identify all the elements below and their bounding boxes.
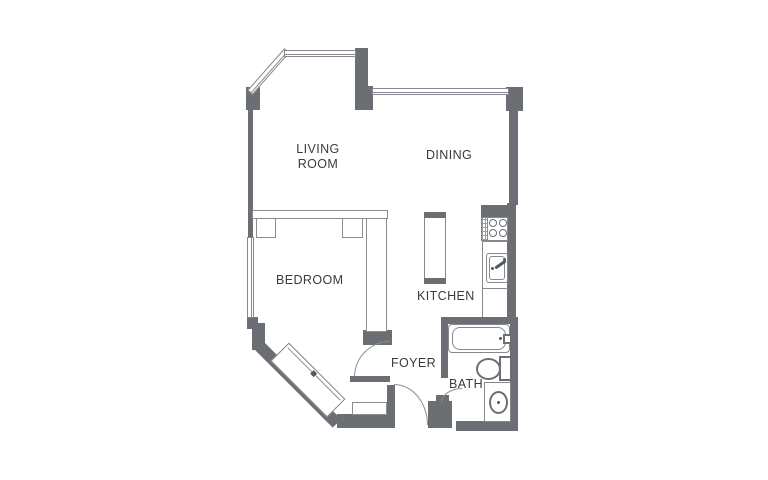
kitchen-sink-drain	[491, 267, 494, 270]
bath-sink-drain	[497, 401, 500, 404]
kitchen-island-cap-bottom	[424, 278, 446, 284]
room-label-living: LIVING ROOM	[283, 142, 353, 172]
floor-plan: LIVING ROOM DINING BEDROOM KITCHEN FOYER…	[0, 0, 768, 480]
wall-bottom-entry	[337, 414, 389, 428]
kitchen-island-cap-top	[424, 212, 446, 218]
bathtub-inner	[452, 327, 506, 350]
room-label-dining: DINING	[426, 148, 472, 162]
wall-pillar-top-middle-foot	[355, 86, 373, 110]
wall-bath-left	[441, 317, 448, 378]
kitchen-island	[424, 212, 446, 284]
bathtub-drain	[499, 337, 502, 340]
wall-bath-bottom	[456, 421, 518, 431]
room-label-bath: BATH	[449, 377, 483, 391]
stove-burner	[499, 219, 507, 227]
wall-kitchen-right	[507, 203, 516, 317]
room-label-bedroom: BEDROOM	[276, 273, 343, 287]
entry-closet-notch	[352, 402, 387, 415]
room-label-foyer: FOYER	[391, 356, 436, 370]
wall-entry-block	[428, 401, 452, 428]
kitchen-faucet-base	[503, 258, 506, 261]
bathtub-faucet	[503, 334, 512, 344]
bedroom-door-arc	[354, 341, 390, 377]
wall-bath-top	[441, 317, 512, 324]
kitchen-counter-divider	[482, 288, 508, 289]
window-living-top	[284, 50, 356, 57]
closet	[271, 343, 346, 418]
wall-pillar-top-middle	[355, 48, 368, 90]
stove-burner	[499, 229, 507, 237]
wall-post-left	[256, 218, 276, 238]
entry-door-arc	[394, 384, 428, 425]
window-bedroom-left	[247, 237, 254, 318]
room-label-kitchen: KITCHEN	[417, 289, 475, 303]
wall-dining-right	[509, 108, 518, 205]
stove-burner	[489, 229, 497, 237]
wall-post-right	[342, 218, 363, 238]
window-dining-top	[372, 88, 509, 95]
stove-burner	[489, 219, 497, 227]
wall-bedroom-right-thin	[366, 218, 387, 332]
